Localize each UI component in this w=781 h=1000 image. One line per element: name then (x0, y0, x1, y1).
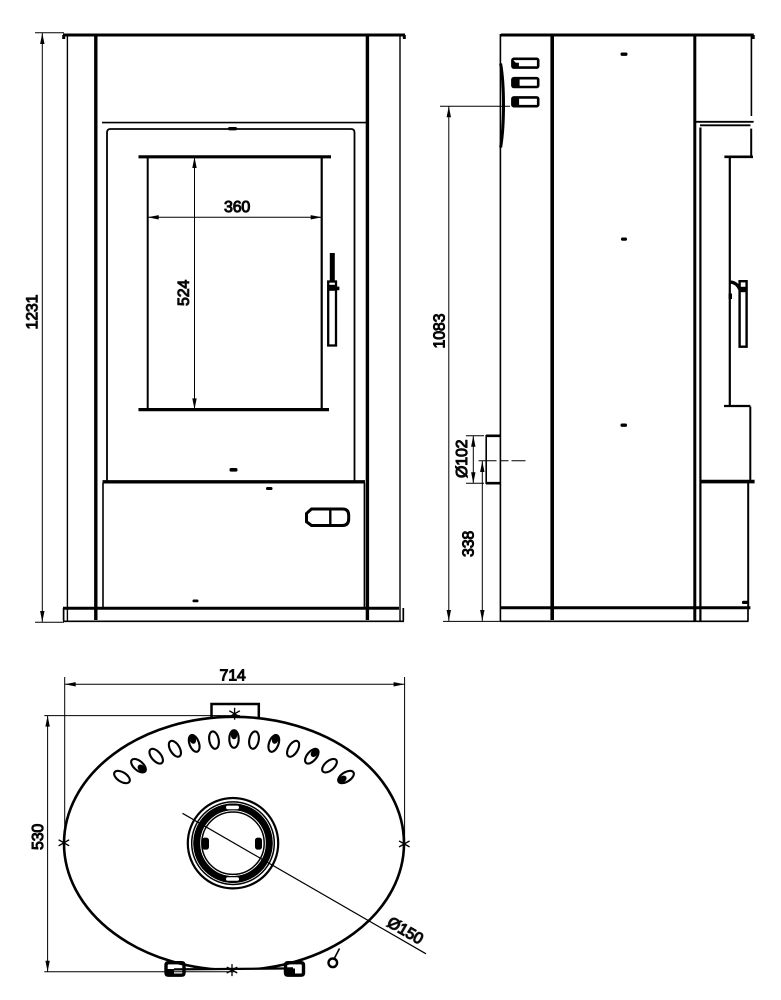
svg-text:1231: 1231 (24, 294, 41, 329)
svg-text:1083: 1083 (432, 313, 449, 348)
svg-text:524: 524 (176, 280, 193, 306)
svg-text:714: 714 (219, 668, 245, 685)
svg-text:Ø102: Ø102 (454, 439, 471, 478)
svg-text:338: 338 (461, 531, 478, 557)
svg-text:530: 530 (30, 824, 47, 850)
svg-text:360: 360 (224, 199, 250, 216)
